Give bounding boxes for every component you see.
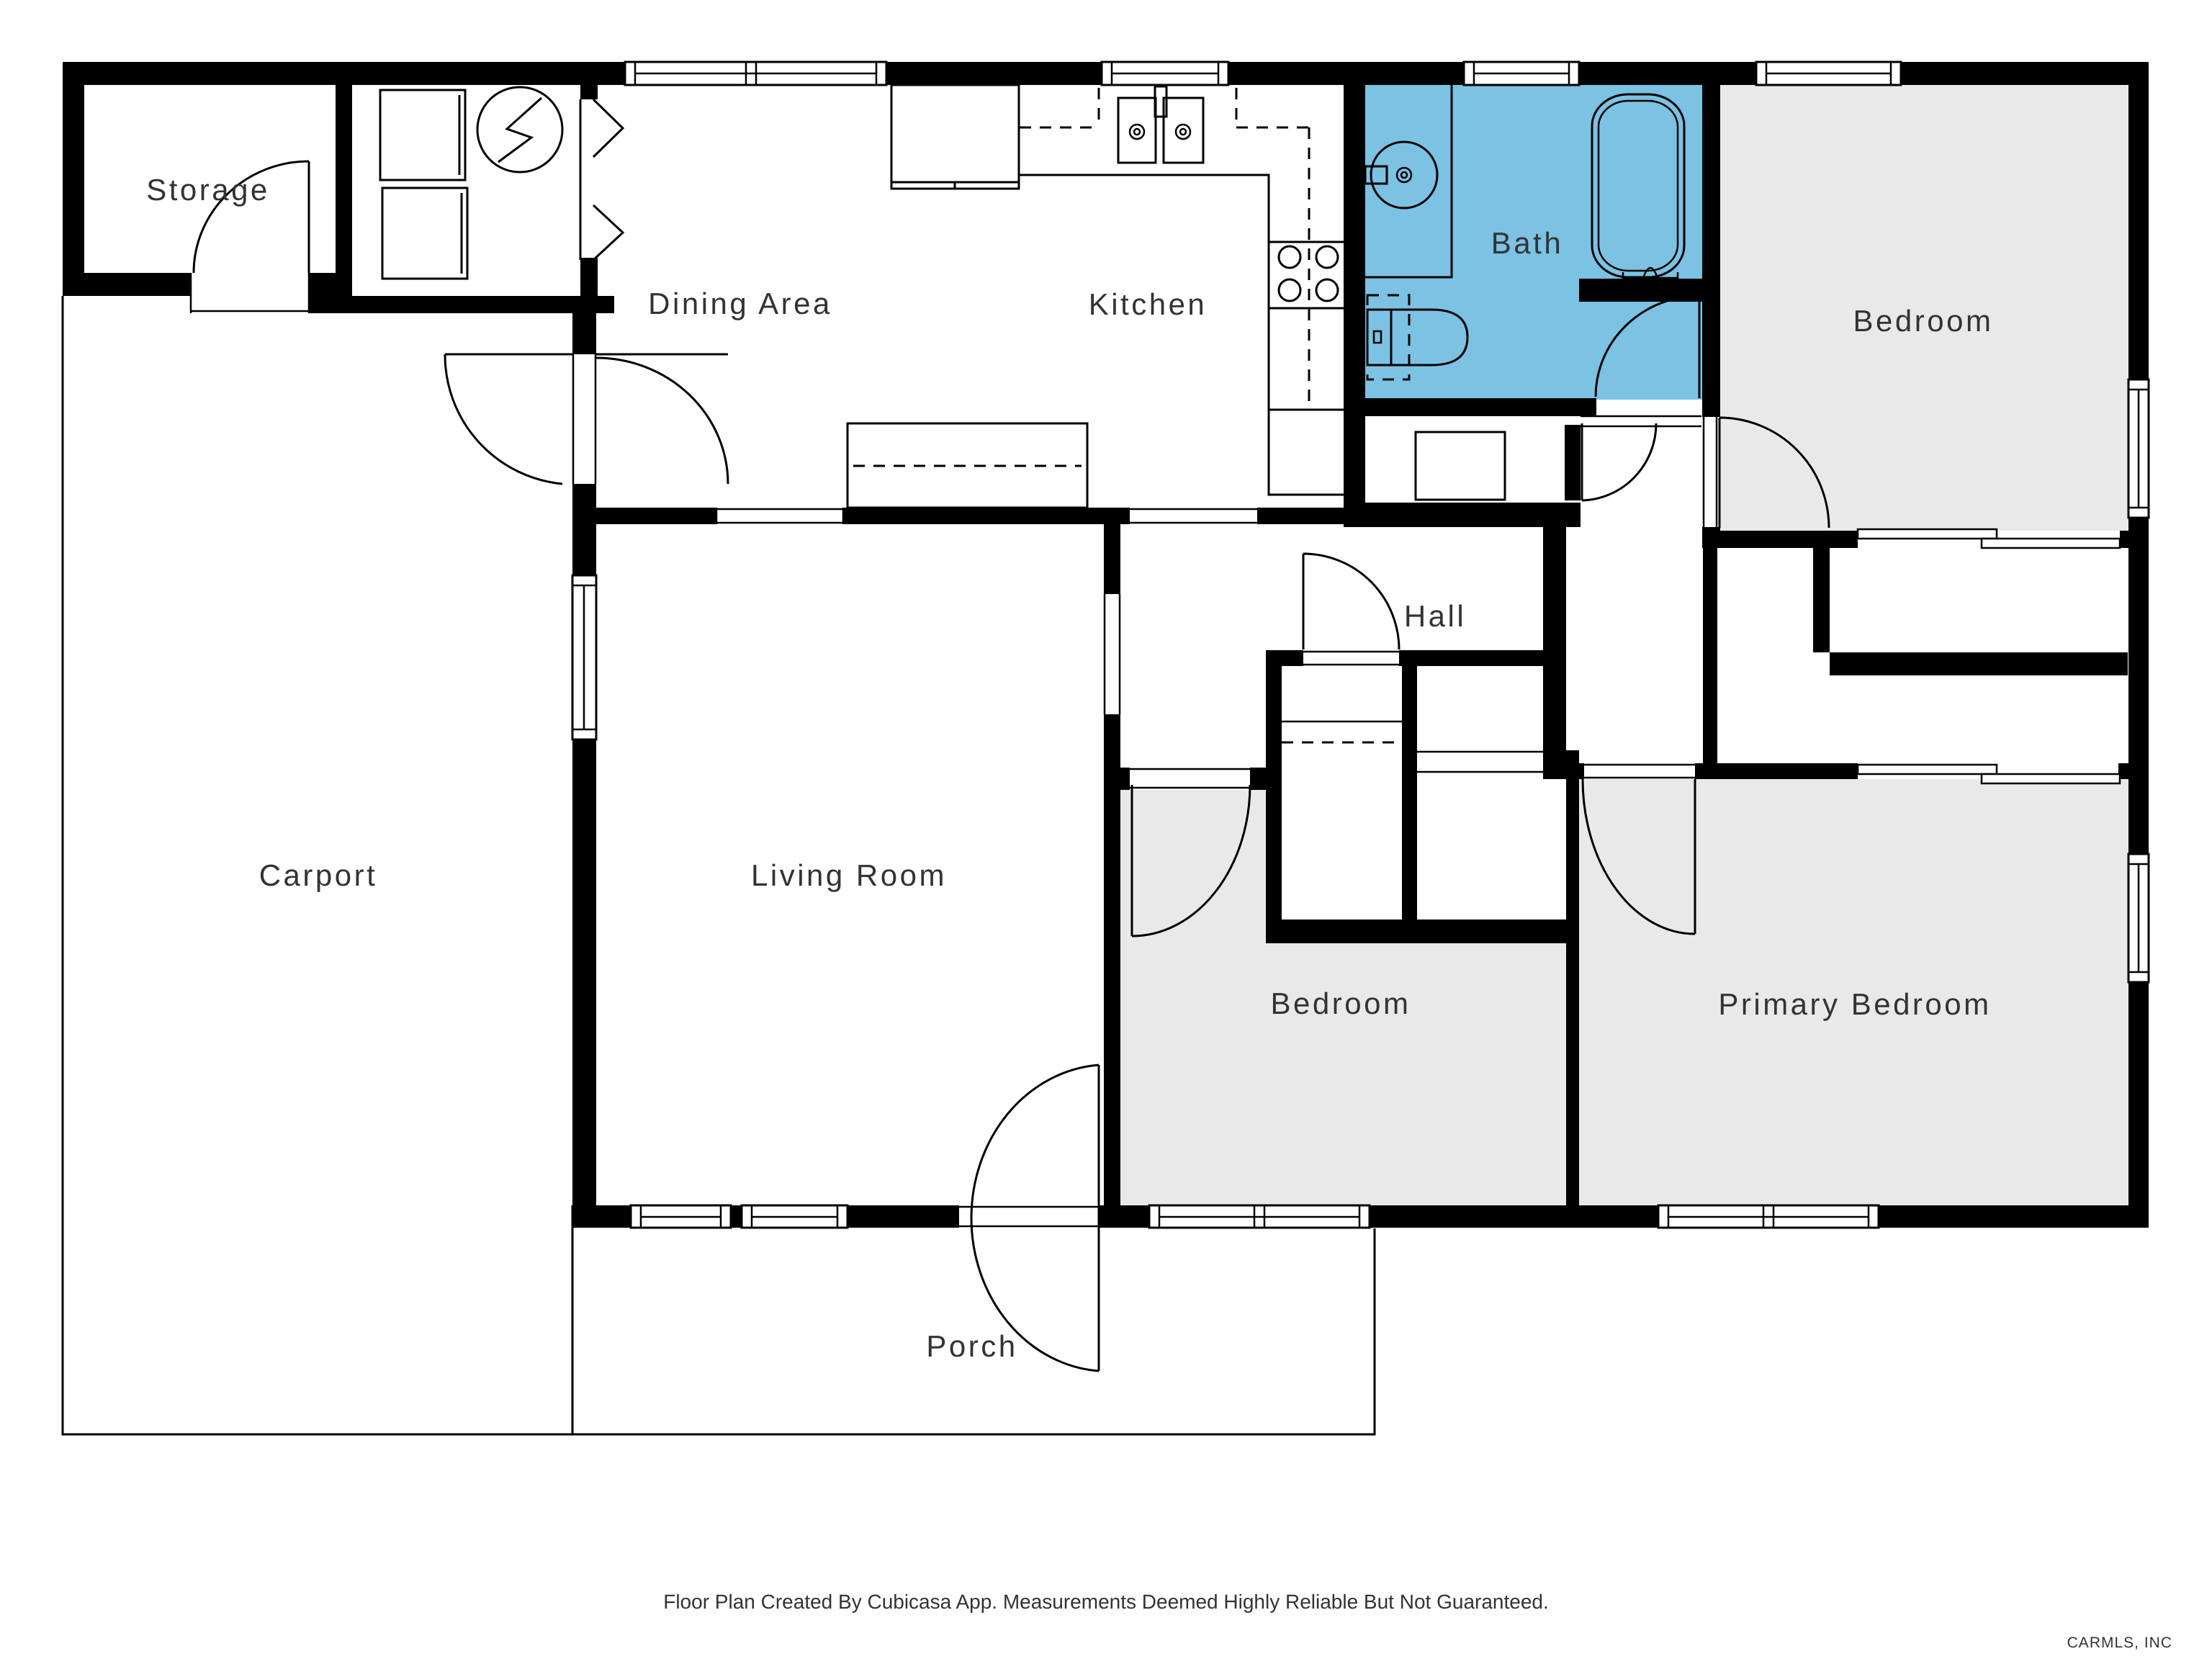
svg-text:Floor Plan Created By Cubicasa: Floor Plan Created By Cubicasa App. Meas… — [663, 1591, 1549, 1613]
svg-text:Dining Area: Dining Area — [648, 287, 832, 320]
svg-text:Hall: Hall — [1404, 599, 1466, 633]
svg-text:Living Room: Living Room — [751, 858, 947, 892]
svg-text:Kitchen: Kitchen — [1089, 287, 1208, 321]
svg-text:Carport: Carport — [259, 858, 378, 892]
svg-text:Storage: Storage — [146, 173, 270, 207]
svg-text:CARMLS, INC: CARMLS, INC — [2067, 1635, 2172, 1651]
svg-text:Bath: Bath — [1491, 226, 1563, 260]
svg-text:Bedroom: Bedroom — [1853, 304, 1994, 338]
svg-text:Primary Bedroom: Primary Bedroom — [1718, 987, 1991, 1021]
svg-text:Porch: Porch — [926, 1329, 1017, 1363]
svg-text:Bedroom: Bedroom — [1271, 986, 1411, 1020]
